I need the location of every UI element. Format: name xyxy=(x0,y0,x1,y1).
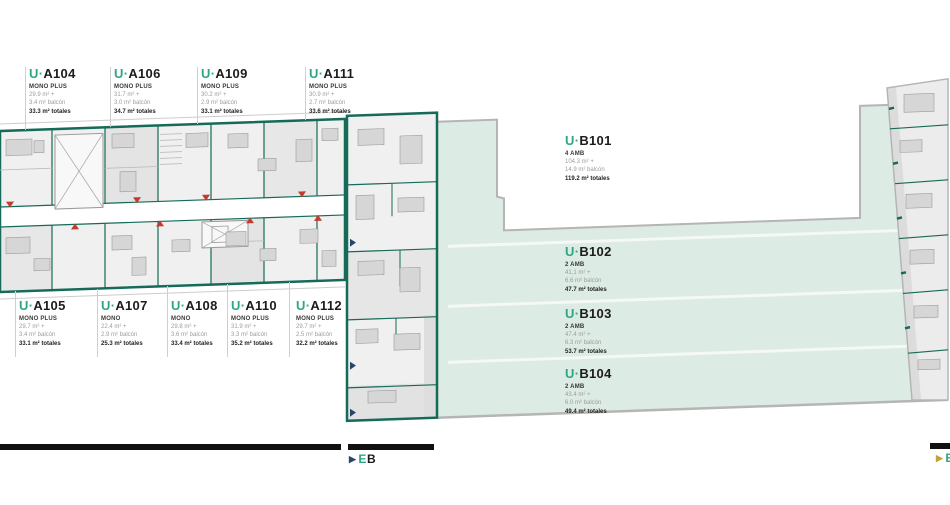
building-a-slab xyxy=(0,112,345,299)
floor-plan-page: U·A104 MONO PLUS 29.9 m² + 3.4 m² balcón… xyxy=(0,0,950,505)
entrance-marker-right: ▶E xyxy=(936,451,950,465)
entrance-arrow-icon: ▶ xyxy=(936,453,943,463)
unit-label-a112[interactable]: U·A112 MONO PLUS 29.7 m² + 2.5 m² balcón… xyxy=(296,299,368,347)
unit-code: U·A109 xyxy=(201,67,273,81)
unit-code: U·A111 xyxy=(309,67,381,81)
unit-label-b104[interactable]: U·B104 2 AMB 43.4 m² + 6.0 m² balcón 49.… xyxy=(565,367,660,415)
street-line-left xyxy=(0,444,341,450)
unit-code: U·B102 xyxy=(565,245,660,259)
unit-code: U·B101 xyxy=(565,134,660,148)
unit-code: U·A107 xyxy=(101,299,173,313)
unit-code: U·A105 xyxy=(19,299,91,313)
unit-code: U·A112 xyxy=(296,299,368,313)
unit-label-a107[interactable]: U·A107 MONO 22.4 m² + 2.9 m² balcón 25.3… xyxy=(101,299,173,347)
unit-label-b103[interactable]: U·B103 2 AMB 47.4 m² + 6.3 m² balcón 53.… xyxy=(565,307,660,355)
unit-label-a111[interactable]: U·A111 MONO PLUS 30.9 m² + 2.7 m² balcón… xyxy=(309,67,381,115)
unit-label-b102[interactable]: U·B102 2 AMB 41.1 m² + 6.6 m² balcón 47.… xyxy=(565,245,660,293)
unit-code: U·A106 xyxy=(114,67,186,81)
stair-core xyxy=(55,133,103,209)
entrance-marker-eb: ▶EB xyxy=(349,452,376,466)
unit-code: U·A110 xyxy=(231,299,303,313)
unit-label-a106[interactable]: U·A106 MONO PLUS 31.7 m² + 3.0 m² balcón… xyxy=(114,67,186,115)
building-b-tower xyxy=(347,113,437,421)
street-line-right xyxy=(348,444,434,450)
unit-code: U·B103 xyxy=(565,307,660,321)
unit-label-a105[interactable]: U·A105 MONO PLUS 29.7 m² + 3.4 m² balcón… xyxy=(19,299,91,347)
unit-label-a104[interactable]: U·A104 MONO PLUS 29.9 m² + 3.4 m² balcón… xyxy=(29,67,101,115)
entrance-arrow-icon: ▶ xyxy=(349,454,356,464)
unit-code: U·B104 xyxy=(565,367,660,381)
unit-label-a110[interactable]: U·A110 MONO PLUS 31.9 m² + 3.3 m² balcón… xyxy=(231,299,303,347)
unit-code: U·A104 xyxy=(29,67,101,81)
terrace-area xyxy=(437,103,948,418)
unit-label-b101[interactable]: U·B101 4 AMB 104.3 m² + 14.9 m² balcón 1… xyxy=(565,134,660,182)
unit-label-a109[interactable]: U·A109 MONO PLUS 30.2 m² + 2.9 m² balcón… xyxy=(201,67,273,115)
street-line-far-right xyxy=(930,443,950,449)
